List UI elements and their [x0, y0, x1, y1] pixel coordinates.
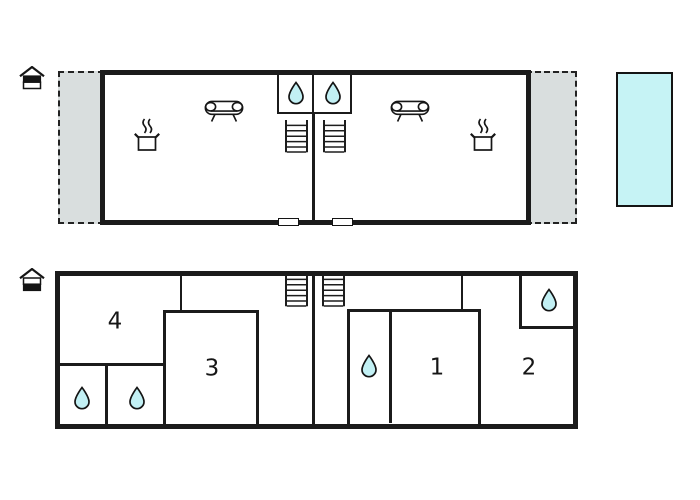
room-2-label: 2 — [522, 357, 537, 380]
cooking-pot-icon — [134, 117, 160, 153]
stairs-icon — [323, 120, 346, 153]
cooking-pot-icon — [470, 117, 496, 153]
door-opening — [278, 218, 299, 226]
house-upper-level-icon — [19, 66, 45, 90]
room-1-label: 1 — [430, 357, 445, 380]
interior-wall — [58, 363, 165, 366]
water-drop-icon — [128, 386, 146, 410]
ground-center-wall — [312, 274, 315, 426]
door-opening — [332, 218, 353, 226]
interior-wall — [389, 312, 392, 423]
stairs-icon — [322, 274, 345, 307]
water-drop-icon — [287, 81, 305, 105]
sofa-icon — [389, 99, 431, 124]
interior-wall — [105, 364, 108, 426]
interior-wall — [461, 274, 464, 312]
interior-wall — [180, 274, 183, 312]
water-drop-icon — [360, 354, 378, 378]
terrace-left — [58, 71, 104, 224]
water-drop-icon — [540, 288, 558, 312]
water-drop-icon — [73, 386, 91, 410]
stairs-icon — [285, 274, 308, 307]
water-drop-icon — [324, 81, 342, 105]
terrace-right — [526, 71, 577, 224]
sofa-icon — [203, 99, 245, 124]
floor-plan-canvas: 4 3 1 2 — [0, 0, 700, 500]
stairs-icon — [285, 120, 308, 153]
house-ground-level-icon — [19, 268, 45, 292]
room-3-label: 3 — [205, 358, 220, 381]
pool — [616, 72, 673, 207]
room-4-label: 4 — [108, 311, 123, 334]
